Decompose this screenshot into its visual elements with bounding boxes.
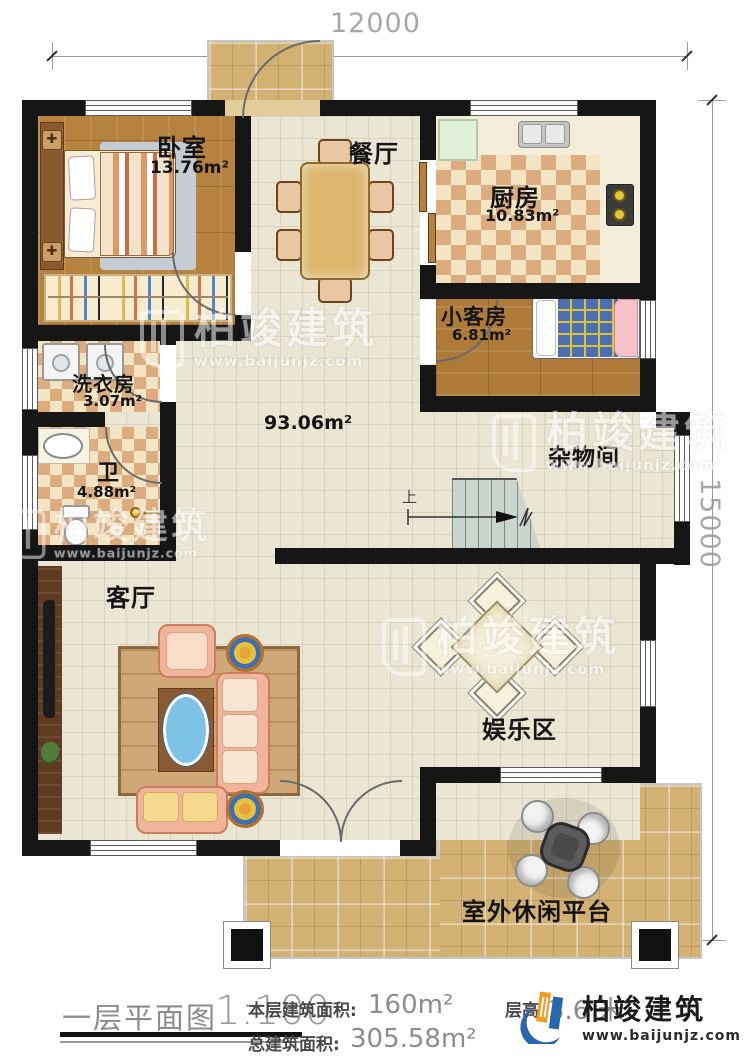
toilet-bowl [64,518,88,546]
sofa-cushion [222,678,258,712]
total-area-label: 总建筑面积: [248,1030,340,1055]
door-knob [130,507,141,518]
knob-line [143,512,160,514]
bedroom-area: 13.76m² [150,158,229,178]
entertainment-window-bottom [500,767,602,783]
wall [420,396,656,412]
laundry-window [22,348,38,410]
storage-label: 杂物间 [548,438,620,472]
entertainment-window-right [640,640,656,707]
guest-door-opening [420,300,436,364]
terrace-door-opening [280,840,400,856]
living-label: 客厅 [106,578,156,613]
dining-table [300,162,370,280]
total-area-value: 305.58m² [350,1024,477,1054]
bed-pillow [68,207,96,252]
sofa-cushion [222,750,258,784]
top-dimension-label: 12000 [330,8,421,39]
coffee-table [163,694,209,766]
dining-chair [318,277,352,303]
entertainment-label: 娱乐区 [482,710,557,745]
wall [22,325,251,341]
wall [640,100,656,412]
right-dimension-line [712,100,713,940]
stairs-direction-arrow [400,504,550,530]
kitchen-sliding-door [428,213,436,263]
brand-logo: 柏竣建筑 www.baijunjz.com [516,988,741,1044]
kitchen-window [470,100,578,116]
brand-logo-icon [516,988,574,1044]
stove-burner [613,208,626,221]
wall [38,412,105,427]
bathroom-window [22,455,38,530]
storage-window [674,435,690,522]
sink-basin [545,124,565,144]
bed-pillow [68,155,96,200]
toilet [62,505,90,519]
top-dimension-line [52,56,688,57]
laundry-area: 3.07m² [83,392,142,410]
wall [420,100,436,160]
wall [22,545,176,561]
guest-bed-blanket [558,299,618,357]
living-window [90,840,197,856]
washer-door [52,354,70,372]
round-chair [226,634,264,672]
loveseat-cushion [143,792,179,822]
bath-sink [43,433,83,459]
tv [43,600,55,718]
loveseat-cushion [182,792,218,822]
floor-area-value: 160m² [368,990,453,1020]
bed-post: ✚ [42,242,62,262]
bed-post: ✚ [42,130,62,150]
armchair-cushion [166,632,208,670]
brand-url: www.baijunjz.com [582,1028,741,1044]
stairs-up-label: 上 [402,486,418,507]
bathroom-area: 4.88m² [77,483,136,501]
sink-basin [522,124,542,144]
wall [275,548,690,564]
bedroom-door-opening [235,252,251,315]
round-chair [226,790,264,828]
floor-plan: 12000 15000 ✚ ✚ [0,0,750,1057]
terrace-floor-left [243,855,440,959]
guest-bed-quilt [614,299,638,357]
guest-bed-pillow [536,300,556,356]
storage-floor [640,428,674,548]
column [224,922,270,968]
column [632,922,678,968]
fridge [438,119,478,161]
right-dimension-label: 15000 [694,478,725,569]
floor-area-label: 本层建筑面积: [248,996,357,1021]
guest-room-window [640,300,656,359]
brand-name: 柏竣建筑 [582,988,741,1028]
bedroom-window [85,100,192,116]
stove-burner [613,189,626,202]
dining-label: 餐厅 [349,134,399,169]
guest-room-area: 6.81m² [452,326,511,344]
dining-chair [368,229,394,261]
dining-chair [276,181,302,213]
wall [420,283,656,299]
dining-chair [368,181,394,213]
kitchen-sliding-door [419,162,427,212]
dining-chair [276,229,302,261]
sofa-cushion [222,714,258,748]
terrace-label: 室外休闲平台 [462,892,612,927]
laundry-door-opening [160,345,176,402]
kitchen-area: 10.83m² [485,206,559,225]
hall-area: 93.06m² [264,412,352,434]
plan-title: 一层平面图 [62,995,217,1037]
